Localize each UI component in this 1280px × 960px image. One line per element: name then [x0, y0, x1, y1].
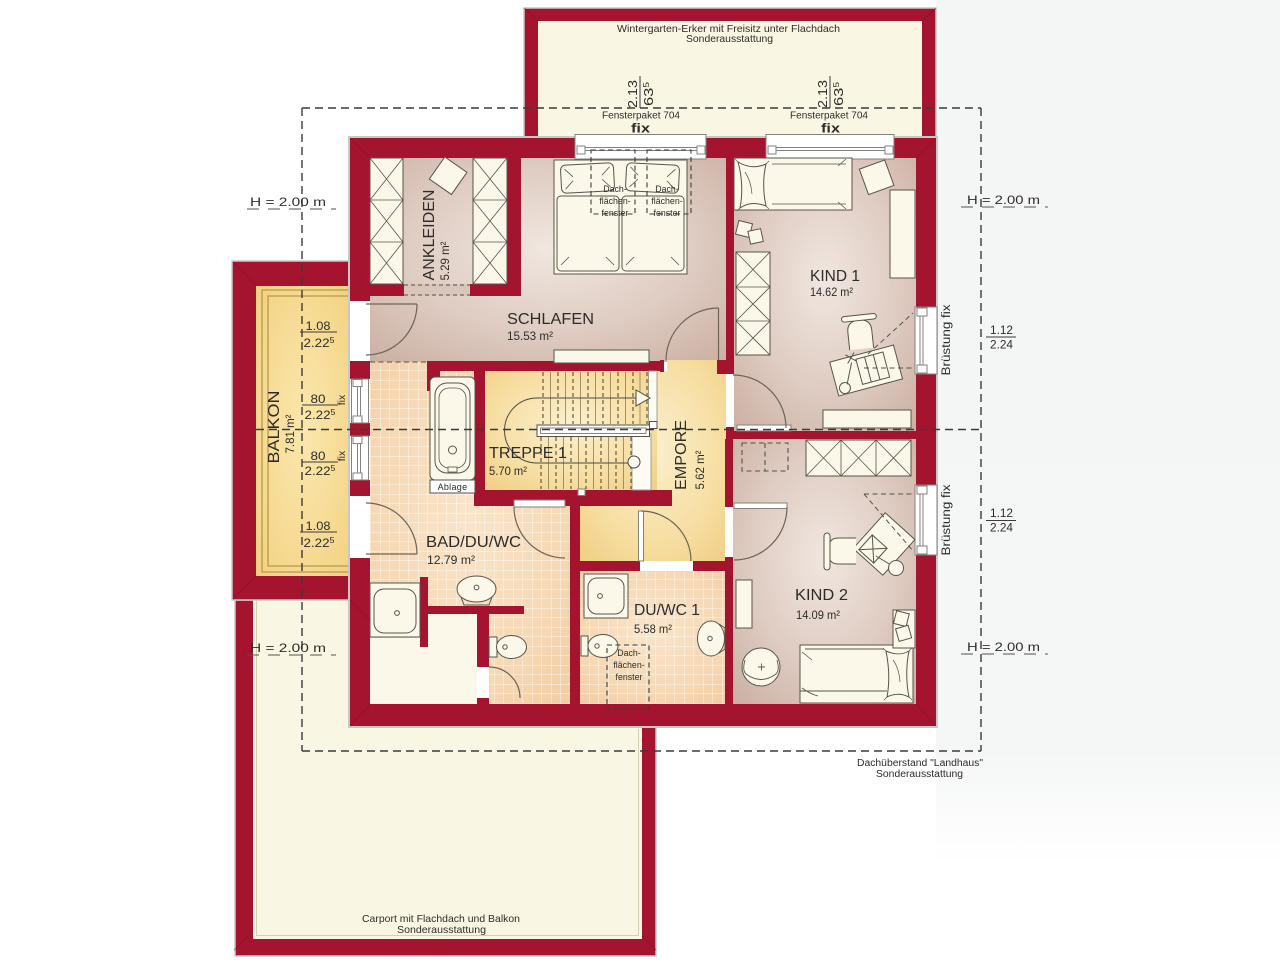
- svg-text:BAD/DU/WC: BAD/DU/WC: [426, 534, 521, 551]
- svg-text:Sonderausstattung: Sonderausstattung: [397, 924, 486, 936]
- svg-text:fenster: fenster: [654, 208, 681, 218]
- svg-text:5.29 m²: 5.29 m²: [438, 242, 452, 281]
- svg-text:Ablage: Ablage: [438, 482, 468, 492]
- svg-text:fix: fix: [631, 122, 650, 136]
- svg-text:Dach-: Dach-: [655, 184, 679, 194]
- svg-text:flächen-: flächen-: [599, 196, 630, 206]
- svg-text:2.24: 2.24: [990, 521, 1013, 535]
- svg-text:fenster: fenster: [602, 208, 629, 218]
- svg-text:H = 2.00 m: H = 2.00 m: [250, 195, 326, 209]
- svg-text:14.62 m²: 14.62 m²: [810, 285, 853, 299]
- svg-text:H = 2.00 m: H = 2.00 m: [967, 193, 1040, 207]
- svg-text:Fensterpaket 704: Fensterpaket 704: [790, 111, 868, 122]
- svg-text:KIND 1: KIND 1: [810, 268, 860, 285]
- svg-text:14.09 m²: 14.09 m²: [796, 608, 840, 622]
- svg-text:5.58 m²: 5.58 m²: [634, 622, 672, 636]
- svg-text:Brüstung fix: Brüstung fix: [941, 484, 953, 555]
- svg-text:EMPORE: EMPORE: [673, 420, 690, 490]
- svg-text:DU/WC 1: DU/WC 1: [634, 602, 700, 619]
- svg-text:Dachüberstand "Landhaus": Dachüberstand "Landhaus": [857, 758, 983, 769]
- svg-text:fix: fix: [336, 450, 348, 461]
- svg-text:1.12: 1.12: [990, 323, 1013, 337]
- svg-text:fenster: fenster: [616, 672, 643, 682]
- svg-text:flächen-: flächen-: [613, 660, 644, 670]
- svg-text:BALKON: BALKON: [266, 391, 283, 464]
- svg-text:flächen-: flächen-: [651, 196, 682, 206]
- svg-text:1.08: 1.08: [306, 519, 331, 533]
- svg-text:Brüstung fix: Brüstung fix: [941, 304, 953, 375]
- svg-text:15.53 m²: 15.53 m²: [507, 329, 553, 343]
- svg-text:KIND 2: KIND 2: [795, 587, 848, 604]
- svg-text:ANKLEIDEN: ANKLEIDEN: [421, 190, 438, 281]
- svg-text:2.13: 2.13: [625, 80, 640, 108]
- svg-text:80: 80: [311, 449, 326, 463]
- svg-text:Sonderausstattung: Sonderausstattung: [686, 33, 773, 45]
- svg-text:Fensterpaket 704: Fensterpaket 704: [602, 111, 680, 122]
- svg-text:7.81 m²: 7.81 m²: [283, 415, 297, 454]
- svg-text:1.12: 1.12: [990, 506, 1013, 520]
- svg-text:12.79 m²: 12.79 m²: [427, 553, 475, 567]
- svg-text:5.70 m²: 5.70 m²: [489, 464, 527, 478]
- svg-text:80: 80: [311, 392, 326, 406]
- svg-text:1.08: 1.08: [306, 319, 331, 333]
- svg-text:SCHLAFEN: SCHLAFEN: [507, 311, 594, 328]
- svg-text:2.13: 2.13: [815, 80, 830, 108]
- svg-text:Dach-: Dach-: [617, 648, 641, 658]
- svg-text:5.62 m²: 5.62 m²: [693, 451, 707, 490]
- svg-text:TREPPE 1: TREPPE 1: [489, 445, 567, 462]
- svg-text:fix: fix: [821, 122, 840, 136]
- svg-text:2.24: 2.24: [990, 338, 1013, 352]
- svg-text:H = 2.00 m: H = 2.00 m: [250, 641, 326, 655]
- svg-text:Dach-: Dach-: [603, 184, 627, 194]
- svg-text:Sonderausstattung: Sonderausstattung: [876, 769, 963, 780]
- svg-text:H = 2.00 m: H = 2.00 m: [967, 640, 1040, 654]
- svg-text:fix: fix: [336, 394, 348, 405]
